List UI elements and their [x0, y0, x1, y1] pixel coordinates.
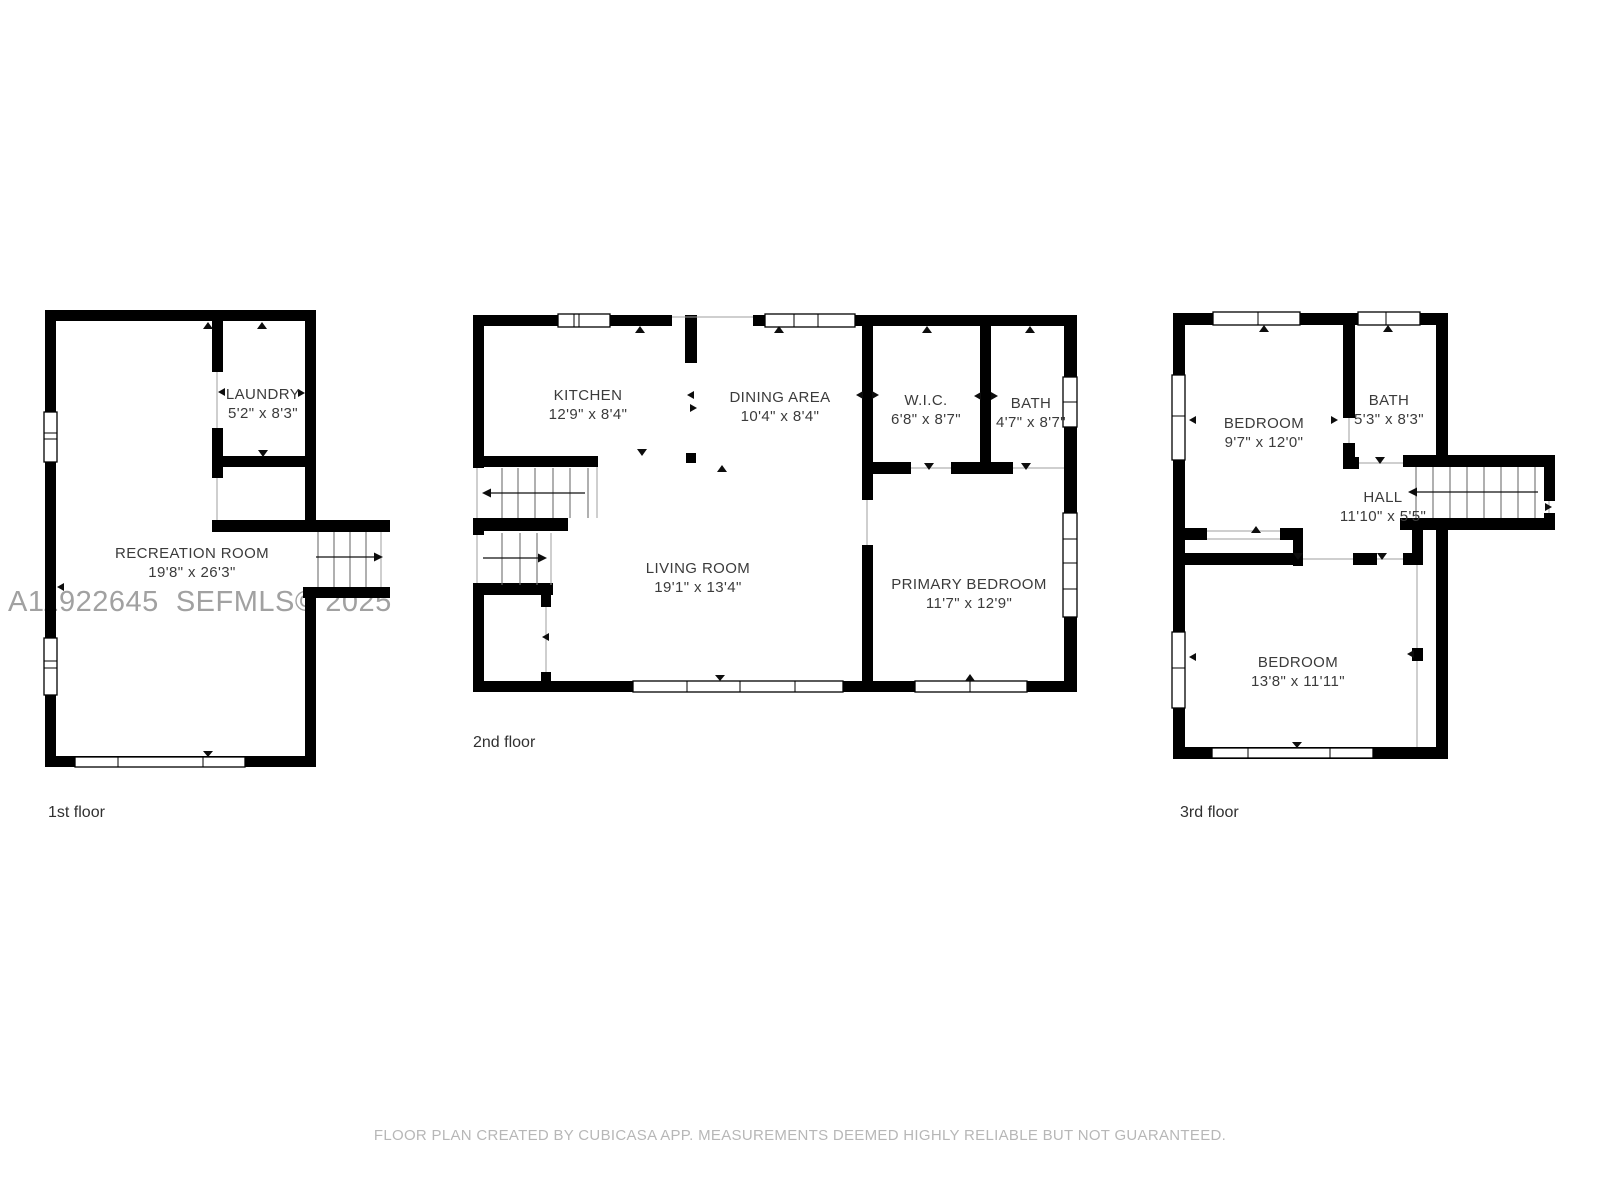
room-name: HALL [1340, 488, 1426, 507]
floor-label-2nd: 2nd floor [473, 734, 535, 752]
room-label-bedroom-3rd-lower: BEDROOM 13'8" x 11'11" [1251, 653, 1345, 691]
room-name: PRIMARY BEDROOM [891, 575, 1046, 594]
room-name: LIVING ROOM [646, 559, 750, 578]
floorplan-2nd-floor [473, 314, 1077, 692]
room-name: RECREATION ROOM [115, 544, 269, 563]
room-name: BEDROOM [1224, 414, 1304, 433]
room-name: LAUNDRY [226, 385, 300, 404]
stairs-3rd-floor [1408, 467, 1538, 518]
windows-2nd-floor [558, 314, 1077, 692]
floorplan-1st-floor [44, 310, 390, 767]
room-label-kitchen: KITCHEN 12'9" x 8'4" [549, 386, 628, 424]
room-dims: 5'2" x 8'3" [226, 404, 300, 423]
room-dims: 19'1" x 13'4" [646, 578, 750, 597]
room-name: BATH [1354, 391, 1424, 410]
footer-disclaimer: FLOOR PLAN CREATED BY CUBICASA APP. MEAS… [0, 1127, 1600, 1144]
room-dims: 11'7" x 12'9" [891, 594, 1046, 613]
floor-plan-canvas: A11922645 SEFMLS© 2025 [0, 0, 1600, 1200]
room-label-recreation-room: RECREATION ROOM 19'8" x 26'3" [115, 544, 269, 582]
room-name: KITCHEN [549, 386, 628, 405]
room-label-hall: HALL 11'10" x 5'5" [1340, 488, 1426, 526]
floor-plan-drawing [0, 0, 1600, 1200]
door-markers-2nd-floor [542, 326, 1035, 681]
room-label-bath-2nd: BATH 4'7" x 8'7" [996, 394, 1066, 432]
room-name: DINING AREA [729, 388, 830, 407]
room-label-bedroom-3rd-upper: BEDROOM 9'7" x 12'0" [1224, 414, 1304, 452]
room-dims: 10'4" x 8'4" [729, 407, 830, 426]
door-markers-3rd-floor [1189, 325, 1552, 748]
room-dims: 9'7" x 12'0" [1224, 433, 1304, 452]
floorplan-3rd-floor [1172, 312, 1555, 759]
floor-label-1st: 1st floor [48, 804, 105, 822]
room-name: W.I.C. [891, 391, 961, 410]
room-dims: 19'8" x 26'3" [115, 563, 269, 582]
room-dims: 12'9" x 8'4" [549, 405, 628, 424]
room-label-living-room: LIVING ROOM 19'1" x 13'4" [646, 559, 750, 597]
room-name: BEDROOM [1251, 653, 1345, 672]
room-dims: 4'7" x 8'7" [996, 413, 1066, 432]
stairs-1st-floor [316, 532, 383, 587]
room-name: BATH [996, 394, 1066, 413]
room-label-wic: W.I.C. 6'8" x 8'7" [891, 391, 961, 429]
room-dims: 5'3" x 8'3" [1354, 410, 1424, 429]
room-label-laundry: LAUNDRY 5'2" x 8'3" [226, 385, 300, 423]
room-label-primary-bedroom: PRIMARY BEDROOM 11'7" x 12'9" [891, 575, 1046, 613]
room-dims: 11'10" x 5'5" [1340, 507, 1426, 526]
room-label-dining-area: DINING AREA 10'4" x 8'4" [729, 388, 830, 426]
room-dims: 6'8" x 8'7" [891, 410, 961, 429]
floor-label-3rd: 3rd floor [1180, 804, 1239, 822]
room-dims: 13'8" x 11'11" [1251, 672, 1345, 691]
room-label-bath-3rd: BATH 5'3" x 8'3" [1354, 391, 1424, 429]
